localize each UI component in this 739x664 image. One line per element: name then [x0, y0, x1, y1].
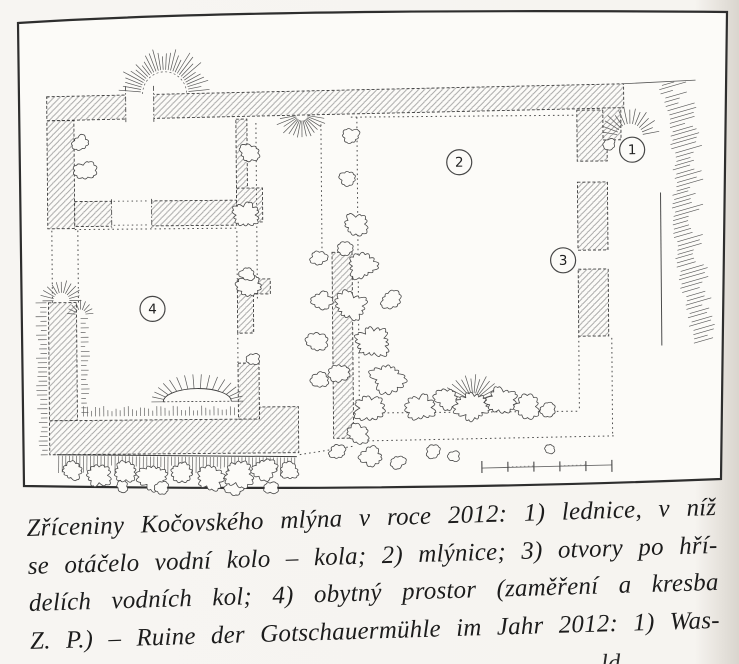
- room-marker-label: 1: [628, 142, 637, 158]
- room-marker-1: 1: [620, 137, 645, 162]
- room-marker-4: 4: [140, 296, 165, 321]
- scanned-book-page: 1234 Zříceniny Kočovského mlýna v roce 2…: [0, 0, 739, 664]
- figure-plan-wrap: 1234: [0, 0, 739, 500]
- room-marker-2: 2: [447, 150, 472, 175]
- ruin-plan-drawing: 1234: [0, 0, 739, 500]
- figure-caption: Zříceniny Kočovského mlýna v roce 2012: …: [26, 489, 720, 660]
- room-marker-label: 2: [455, 155, 464, 171]
- room-marker-3: 3: [550, 248, 575, 273]
- room-marker-label: 3: [559, 253, 568, 269]
- caption-partial-next-line: ld: [601, 651, 621, 664]
- room-marker-label: 4: [148, 301, 157, 317]
